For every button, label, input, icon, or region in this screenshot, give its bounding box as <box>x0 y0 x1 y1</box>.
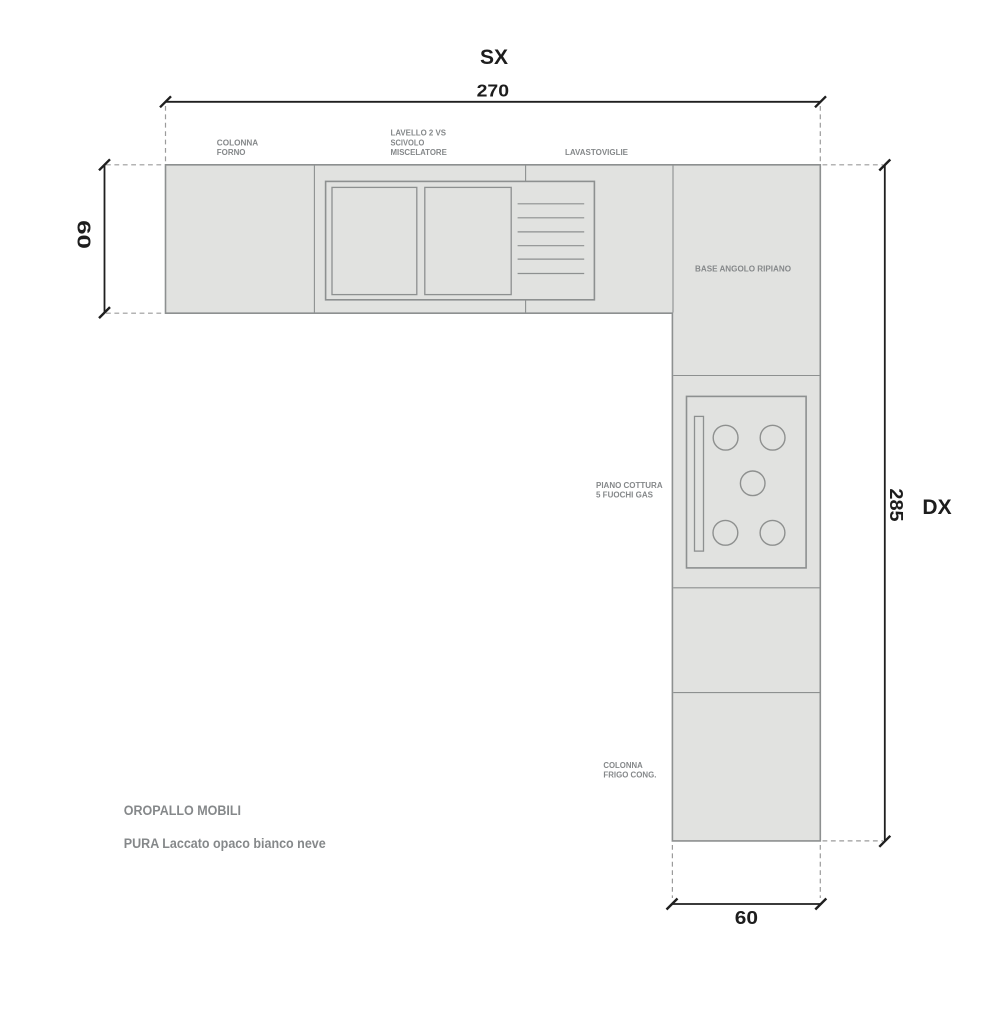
svg-text:270: 270 <box>477 80 510 100</box>
svg-text:5 FUOCHI GAS: 5 FUOCHI GAS <box>596 491 654 500</box>
svg-text:SCIVOLO: SCIVOLO <box>391 138 425 147</box>
svg-text:DX: DX <box>922 496 951 519</box>
svg-text:60: 60 <box>735 907 758 928</box>
svg-text:FORNO: FORNO <box>217 148 246 157</box>
svg-text:LAVELLO 2 VS: LAVELLO 2 VS <box>391 128 447 137</box>
svg-text:COLONNA: COLONNA <box>217 139 259 148</box>
svg-text:OROPALLO MOBILI: OROPALLO MOBILI <box>124 803 241 818</box>
svg-text:MISCELATORE: MISCELATORE <box>391 148 448 157</box>
svg-text:285: 285 <box>886 488 907 521</box>
svg-text:FRIGO CONG.: FRIGO CONG. <box>603 771 656 780</box>
svg-text:BASE ANGOLO RIPIANO: BASE ANGOLO RIPIANO <box>695 265 791 274</box>
svg-text:PIANO COTTURA: PIANO COTTURA <box>596 481 663 490</box>
svg-text:COLONNA: COLONNA <box>603 761 643 770</box>
svg-text:LAVASTOVIGLIE: LAVASTOVIGLIE <box>565 148 629 157</box>
svg-text:PURA Laccato opaco bianco neve: PURA Laccato opaco bianco neve <box>124 836 326 851</box>
svg-text:SX: SX <box>480 46 508 69</box>
svg-text:60: 60 <box>74 220 95 249</box>
